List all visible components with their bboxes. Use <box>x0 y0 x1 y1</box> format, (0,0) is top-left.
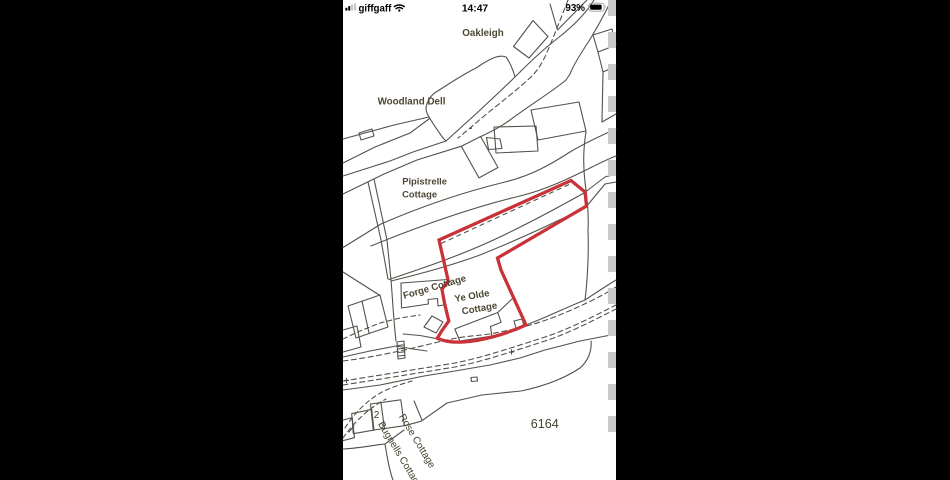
svg-text:Woodland Dell: Woodland Dell <box>378 97 446 108</box>
svg-text:14:47: 14:47 <box>462 3 489 14</box>
svg-text:2: 2 <box>374 410 380 421</box>
svg-text:Pipistrelle: Pipistrelle <box>402 176 447 187</box>
svg-text:giffgaff: giffgaff <box>359 4 393 15</box>
svg-text:93%: 93% <box>565 3 585 14</box>
svg-text:Oakleigh: Oakleigh <box>462 28 503 39</box>
svg-text:6164: 6164 <box>531 417 559 431</box>
svg-text:Cottage: Cottage <box>402 189 437 200</box>
